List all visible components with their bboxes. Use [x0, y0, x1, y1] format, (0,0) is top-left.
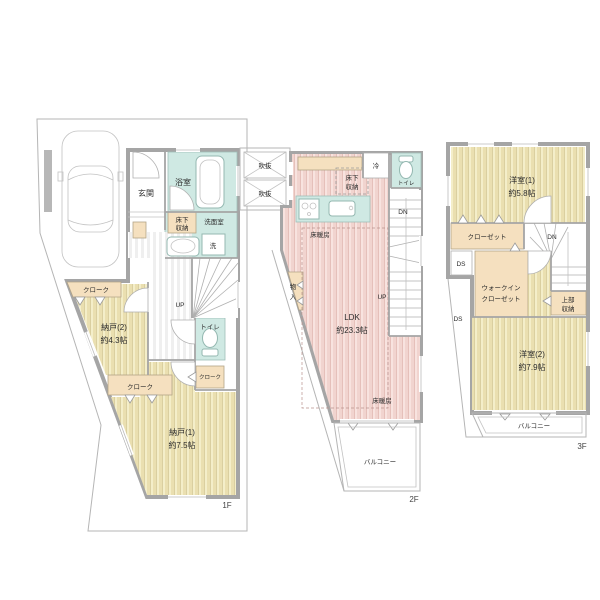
label-genkan: 玄関	[138, 188, 154, 198]
floorplan-canvas: 玄関 浴室 床下 収納 洗面室 洗 クローク 納戸(2) 約4.3帖 UP トイ…	[0, 0, 600, 600]
hall-1f	[150, 258, 192, 318]
label-yoshitsu2-size: 約7.9帖	[518, 362, 545, 372]
label-ds-a: DS	[456, 261, 466, 268]
label-cloak-b: クローク	[127, 383, 153, 391]
label-monoire-2: 入	[290, 294, 297, 301]
label-upper-storage-1: 上部	[562, 295, 576, 304]
walkin-closet	[475, 251, 528, 317]
toilet-icon-2f	[400, 162, 413, 179]
label-ldk-size: 約23.3帖	[336, 325, 368, 335]
label-senmen: 洗面室	[204, 217, 224, 226]
label-wic-2: クローゼット	[482, 294, 521, 303]
fence-bar	[44, 150, 52, 212]
label-dn-2f: DN	[398, 209, 408, 216]
label-closet-3f: クローゼット	[468, 232, 507, 241]
label-floorheat-b: 床暖房	[372, 396, 392, 405]
label-toilet-1f: トイレ	[200, 324, 220, 331]
shoe-cabinet	[133, 222, 146, 238]
label-void-2: 吹抜	[259, 189, 273, 198]
closet-monoire	[288, 272, 303, 310]
stairs-1f	[192, 258, 238, 318]
label-monoire-1: 物	[290, 282, 297, 291]
stove-icon	[299, 199, 319, 219]
label-wash: 洗	[210, 241, 217, 250]
toilet-icon-1f	[203, 329, 218, 348]
label-floorheat-a: 床暖房	[310, 230, 330, 239]
label-nando1-size: 約7.5帖	[168, 440, 195, 450]
label-underfloor-2f-2: 収納	[346, 182, 359, 191]
car-icon	[58, 131, 123, 267]
label-nando2-size: 約4.3帖	[100, 335, 127, 345]
label-dn-3f: DN	[547, 234, 557, 241]
kitchen-sink-icon	[329, 201, 355, 216]
label-void-1: 吹抜	[259, 161, 273, 170]
label-nando2: 納戸(2)	[101, 322, 127, 332]
label-yoshitsu1-size: 約5.8帖	[508, 188, 535, 198]
label-cloak-c: クローク	[199, 374, 221, 381]
floor-1f: 玄関 浴室 床下 収納 洗面室 洗 クローク 納戸(2) 約4.3帖 UP トイ…	[37, 119, 247, 531]
label-fridge: 冷	[373, 161, 380, 170]
label-ds-b: DS	[453, 316, 463, 323]
balcony-2f	[334, 423, 420, 491]
label-underfloor-2: 収納	[176, 223, 189, 232]
label-yoshitsu1: 洋室(1)	[509, 175, 535, 185]
label-toilet-2f: トイレ	[398, 181, 415, 187]
label-nando1: 納戸(1)	[169, 427, 195, 437]
label-underfloor-2f-1: 床下	[346, 173, 360, 182]
label-yoshitsu2: 洋室(2)	[519, 349, 545, 359]
floor-tag-3f: 3F	[577, 442, 586, 451]
room-yoshitsu1	[451, 147, 585, 223]
label-balcony-2f: バルコニー	[364, 458, 396, 466]
label-underfloor-1: 床下	[176, 215, 190, 224]
label-wic-1: ウォークイン	[482, 284, 521, 292]
label-balcony-3f: バルコニー	[518, 422, 550, 430]
floor-tag-2f: 2F	[409, 495, 418, 504]
label-up-2f: UP	[377, 294, 386, 301]
label-cloak-a: クローク	[83, 286, 109, 294]
label-bath: 浴室	[175, 177, 191, 187]
floor-3f: 洋室(1) 約5.8帖 クローゼット DN DS ウォークイン クローゼット D…	[448, 144, 588, 451]
floor-tag-1f: 1F	[222, 501, 231, 510]
floorplan-page: 玄関 浴室 床下 収納 洗面室 洗 クローク 納戸(2) 約4.3帖 UP トイ…	[0, 0, 600, 600]
label-upper-storage-2: 収納	[562, 304, 575, 313]
label-ldk: LDK	[344, 313, 360, 322]
label-up-1f: UP	[175, 302, 184, 309]
floor-2f: 吹抜 吹抜 床下 収納 冷 トイレ DN 床暖房 物 入 LDK 約23.3帖 …	[240, 148, 421, 504]
